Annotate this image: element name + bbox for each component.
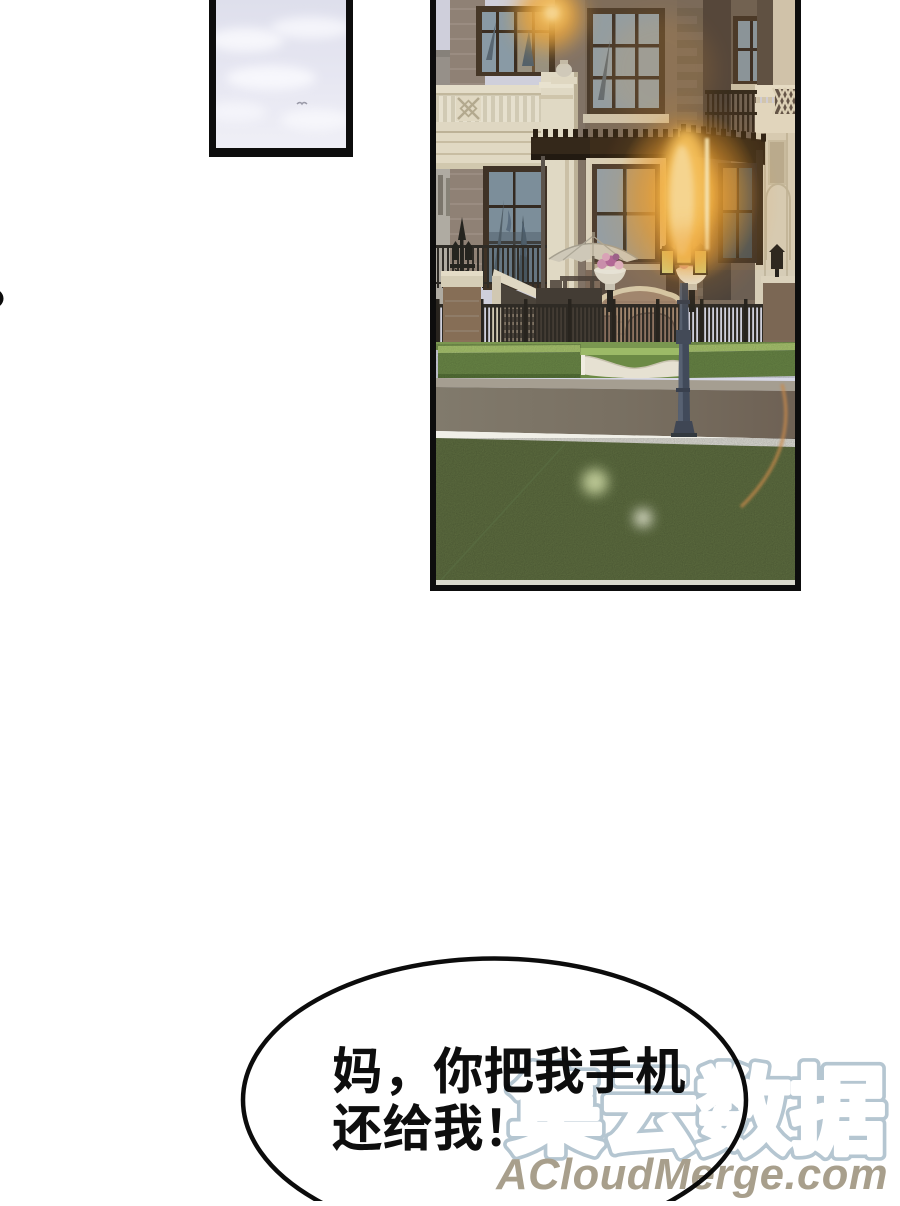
svg-text:ACloudMerge.com: ACloudMerge.com: [495, 1151, 888, 1199]
